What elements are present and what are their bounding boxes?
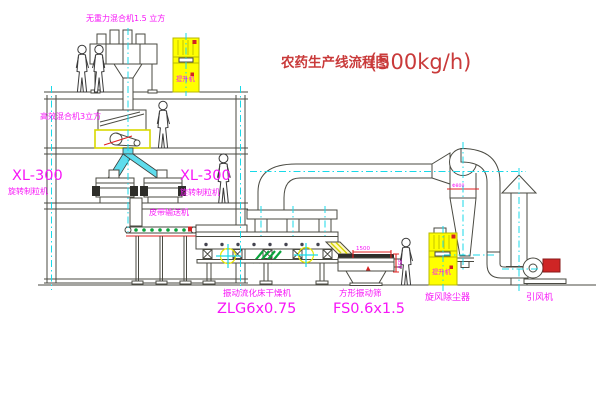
label-fan-name: 引风机 [526, 291, 553, 303]
drawing-canvas: 农药生产线流程图 (500kg/h) 无重力混合机1.5 立方 高效混合机3立方… [0, 0, 600, 403]
label-elevator-right: 提升机 [432, 267, 452, 276]
flow-diagram: 农药生产线流程图 (500kg/h) 无重力混合机1.5 立方 高效混合机3立方… [0, 0, 600, 403]
person-floor3 [157, 101, 169, 148]
discharge-chute [130, 198, 142, 226]
sifter-machine [95, 110, 150, 148]
label-elevator-top: 提升机 [176, 74, 196, 83]
label-granulator-right-model: XL-300 [180, 168, 231, 184]
person-top-left [76, 45, 88, 92]
label-dryer-model: ZLG6x0.75 [217, 301, 296, 317]
page-title-capacity: (500kg/h) [369, 50, 471, 74]
label-granulator-right-name: 旋转制粒机 [180, 187, 220, 197]
label-belt-conveyor: 皮带输送机 [149, 207, 189, 217]
label-sieve-model: FS0.6x1.5 [333, 301, 405, 317]
label-gravity-mixer: 无重力混合机1.5 立方 [86, 13, 165, 23]
label-sieve-name: 方形振动筛 [339, 288, 382, 299]
label-granulator-left-name: 旋转制粒机 [8, 186, 48, 196]
belt-conveyor [125, 227, 197, 285]
label-high-eff-mixer: 高效混合机3立方 [40, 111, 101, 121]
label-cyclone-size: Φ800 [452, 183, 464, 189]
fluid-bed-dryer [196, 210, 340, 284]
exhaust-duct [258, 164, 437, 210]
label-cyclone-name: 旋风除尘器 [425, 291, 470, 303]
dim-sieve-height: 350 [396, 259, 402, 269]
label-dryer-name: 振动流化床干燥机 [223, 288, 292, 299]
label-granulator-left-model: XL-300 [12, 168, 63, 184]
dim-sieve-length: 1500 [356, 246, 370, 252]
